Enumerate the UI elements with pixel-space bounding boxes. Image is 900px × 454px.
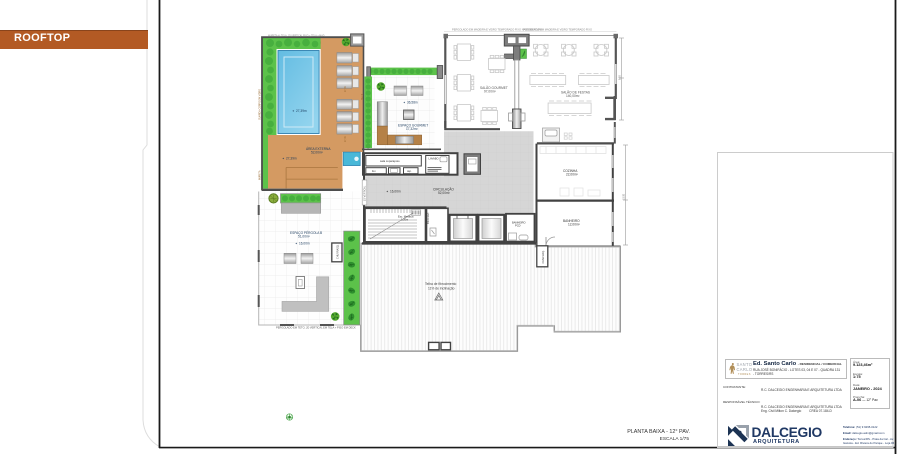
svg-text:97,00m²: 97,00m²: [484, 90, 496, 94]
svg-text:✦: ✦: [386, 190, 389, 194]
svg-text:27,39: 27,39: [345, 86, 347, 92]
svg-text:16,00m: 16,00m: [299, 242, 310, 246]
svg-text:36,58m: 36,58m: [407, 101, 418, 105]
svg-text:sala copa/apoio: sala copa/apoio: [380, 159, 400, 163]
svg-text:✦: ✦: [295, 242, 298, 246]
svg-text:GUARDA-CORPO EM VIDRO: GUARDA-CORPO EM VIDRO: [259, 89, 262, 120]
svg-text:MURETA: MURETA: [259, 170, 262, 180]
svg-text:10,00: 10,00: [622, 193, 625, 200]
svg-text:52,00m²: 52,00m²: [438, 191, 450, 195]
svg-text:140,00m²: 140,00m²: [566, 94, 579, 98]
svg-text:27,39m: 27,39m: [286, 157, 297, 161]
svg-text:CASA MAQ.: CASA MAQ.: [542, 250, 545, 263]
svg-text:✦: ✦: [403, 101, 406, 105]
svg-text:12,00m²: 12,00m²: [568, 223, 580, 227]
svg-text:11% de inclinação: 11% de inclinação: [428, 287, 455, 291]
svg-text:✦: ✦: [282, 157, 285, 161]
svg-text:51,00m²: 51,00m²: [298, 235, 310, 239]
svg-text:17,32m²: 17,32m²: [406, 127, 418, 131]
svg-text:27,39: 27,39: [345, 136, 347, 142]
svg-text:16,00m: 16,00m: [390, 190, 401, 194]
svg-text:PCD: PCD: [515, 224, 521, 228]
svg-text:8,50: 8,50: [618, 75, 621, 80]
svg-text:1,20m: 1,20m: [401, 218, 408, 222]
svg-text:DECK: DECK: [362, 93, 364, 100]
svg-text:MURETA H: TELA, JD VERTICAL FI: MURETA H: TELA, JD VERTICAL FIXO + TELA …: [268, 35, 325, 38]
svg-text:✦: ✦: [292, 109, 295, 113]
svg-text:22,00m²: 22,00m²: [566, 173, 578, 177]
svg-text:dep.: dep.: [407, 170, 412, 173]
svg-text:PERGOLADO EM TETO, JD VERTICAL: PERGOLADO EM TETO, JD VERTICAL EM TELA +…: [276, 325, 356, 329]
svg-text:LAVABO: LAVABO: [429, 157, 439, 161]
svg-text:CHURRASQ.: CHURRASQ.: [337, 244, 340, 259]
svg-text:52,00m²: 52,00m²: [311, 151, 323, 155]
svg-text:Telha de fibrocimento: Telha de fibrocimento: [425, 282, 457, 286]
svg-text:BICICLET.: BICICLET.: [426, 212, 430, 224]
svg-text:27,39m: 27,39m: [296, 109, 307, 113]
svg-text:PERGOLADO EM MADEIRA E VIDRO T: PERGOLADO EM MADEIRA E VIDRO TEMPORADO F…: [523, 28, 592, 32]
svg-text:JD VERTICAL: JD VERTICAL: [364, 185, 367, 201]
